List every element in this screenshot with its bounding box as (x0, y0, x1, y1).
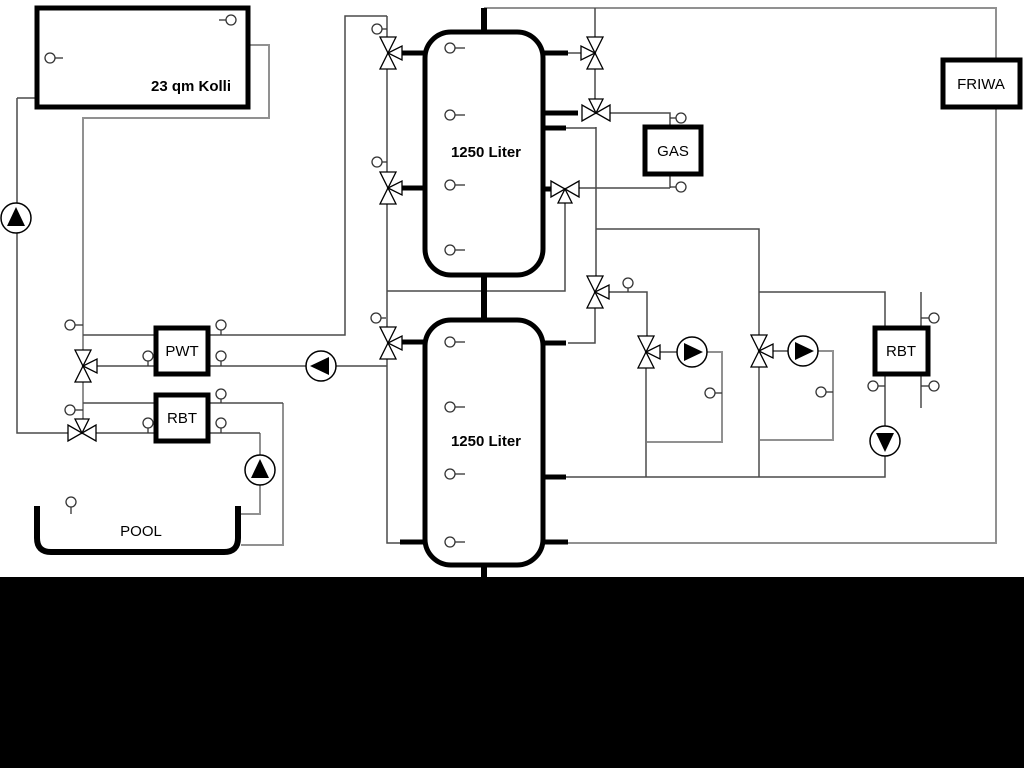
sensor-circuit1 (705, 388, 722, 398)
hydraulic-schematic: 23 qm Kolli 1250 Liter 1250 Liter GAS FR… (0, 0, 1024, 768)
three-way-valve-circuit2 (751, 335, 773, 367)
bottom-black-band (0, 577, 1024, 768)
schematic-canvas: 23 qm Kolli 1250 Liter 1250 Liter GAS FR… (0, 0, 1024, 768)
three-way-valve-gas (582, 99, 610, 121)
sensor-gas-flow (670, 113, 686, 123)
pump-pwt (306, 351, 336, 381)
pipe-rbt-right-flow (759, 292, 885, 328)
sensor-circuit2 (816, 387, 833, 397)
pump-solar (1, 203, 31, 233)
sensor-valve-solar (65, 320, 83, 330)
sensor-valve-t1-mid (372, 157, 387, 167)
sensor-rbtl-top (216, 389, 226, 403)
three-way-valve-t2-top (380, 327, 402, 359)
sensor-rbtr-bottom (921, 381, 939, 391)
three-way-valve-t1-right (581, 37, 603, 69)
rbt-left-label: RBT (167, 410, 197, 427)
sensor-pwt-out (216, 351, 226, 366)
sensor-rbtl-out (216, 418, 226, 433)
pipe-tank-left-riser (387, 16, 400, 543)
three-way-valve-distribution (587, 276, 609, 308)
three-way-valve-circuit1 (638, 336, 660, 368)
pump-circuit1 (677, 337, 707, 367)
pump-pool (245, 455, 275, 485)
sensor-pwt-in (143, 351, 153, 366)
pump-circuit2 (788, 336, 818, 366)
pool-label: POOL (120, 523, 162, 540)
pipe-distribution-upper (596, 229, 759, 335)
pipe-left-riser (17, 98, 68, 433)
sensor-distribution (623, 278, 633, 292)
sensor-rbtr-left (868, 381, 885, 391)
friwa-label: FRIWA (957, 76, 1005, 93)
pipe-tank2-top-right (568, 308, 595, 343)
sensor-rbtr-top (921, 313, 939, 323)
pump-rbt-right (870, 426, 900, 456)
sensor-valve-t2-top (371, 313, 386, 323)
three-way-valve-t1-mid (380, 172, 402, 204)
pipe-circuit1-flow (609, 292, 647, 336)
three-way-valve-solar (75, 350, 97, 382)
three-way-valve-pool (68, 419, 96, 441)
sensor-valve-pool (65, 405, 83, 415)
pipe-return-header (566, 374, 885, 477)
three-way-valve-t1-top (380, 37, 402, 69)
pwt-label: PWT (165, 343, 198, 360)
sensor-pwt-top (216, 320, 226, 335)
gas-label: GAS (657, 143, 689, 160)
rbt-right-label: RBT (886, 343, 916, 360)
sensor-rbtl-in (143, 418, 153, 433)
sensor-gas-return (670, 182, 686, 192)
tank-top-label: 1250 Liter (451, 144, 521, 161)
tank-bottom-label: 1250 Liter (451, 433, 521, 450)
collector-label: 23 qm Kolli (151, 78, 231, 95)
sensor-pool (66, 497, 76, 514)
sensor-valve-t1-top (372, 24, 387, 34)
three-way-valve-gas-return (551, 181, 579, 203)
